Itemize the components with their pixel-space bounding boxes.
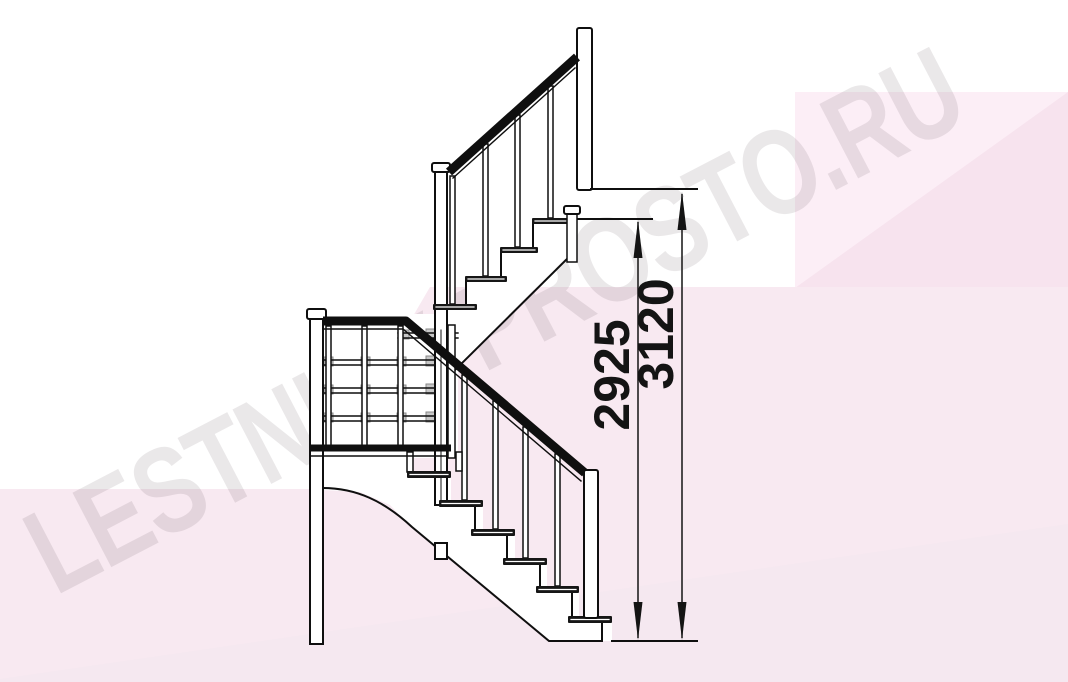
arrow-up-icon: [634, 220, 643, 258]
upper-flight-fill: [437, 218, 574, 372]
arrow-down-icon: [634, 602, 643, 640]
top-step-post: [564, 206, 580, 262]
staircase-drawing: 2925 3120: [0, 0, 1068, 682]
arrow-down-icon: [678, 602, 687, 640]
dimension-label-3120: 3120: [628, 278, 684, 389]
left-newel-post: [307, 309, 326, 644]
stringer-notch: [435, 543, 447, 559]
drawing-canvas: LESTNICY-PROSTO.RU: [0, 0, 1068, 682]
arrow-up-icon: [678, 192, 687, 230]
bottom-newel-post: [584, 470, 598, 618]
landing-newel-post: [577, 28, 592, 190]
